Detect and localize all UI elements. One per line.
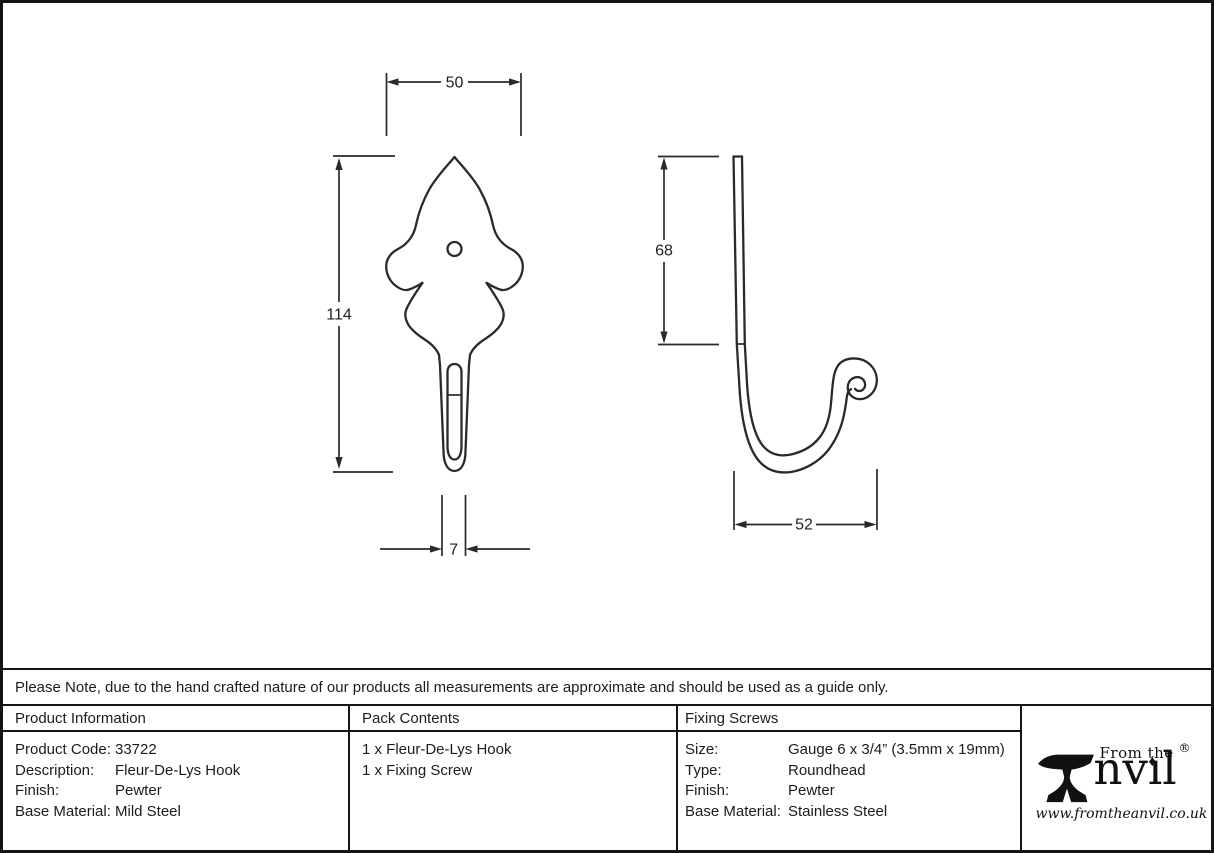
pack-contents-cell: 1 x Fleur-De-Lys Hook 1 x Fixing Screw (350, 732, 678, 850)
dim-side-height-label: 68 (655, 243, 673, 260)
product-information-cell: Product Code: 33722 Description: Fleur-D… (3, 732, 350, 850)
front-view: 50 114 7 (326, 73, 530, 559)
table-row: Finish: Pewter (685, 781, 1020, 802)
dim-side-reach: 52 (734, 469, 877, 534)
dim-stem-width-label: 7 (449, 542, 458, 559)
dim-stem-width: 7 (380, 495, 530, 559)
table-row: Type: Roundhead (685, 761, 1020, 782)
hook-tip-front-detail (448, 364, 462, 460)
table-row: Base Material: Mild Steel (15, 802, 348, 823)
dim-front-height: 114 (326, 156, 395, 472)
header-fixing-screws: Fixing Screws (678, 706, 1022, 732)
registered-mark: ® (1179, 741, 1191, 755)
table-row: Size: Gauge 6 x 3/4” (3.5mm x 19mm) (685, 740, 1020, 761)
from-the-anvil-logo: From the nvıl ♦ ® www.fromtheanvil.co.uk (1036, 734, 1198, 822)
dim-side-reach-label: 52 (795, 517, 813, 534)
table-row: Product Code: 33722 (15, 740, 348, 761)
hook-outer-edge (734, 157, 852, 473)
fixing-screws-cell: Size: Gauge 6 x 3/4” (3.5mm x 19mm) Type… (678, 732, 1022, 850)
note-text: Please Note, due to the hand crafted nat… (15, 679, 889, 696)
technical-drawing: 50 114 7 (3, 3, 1211, 668)
diamond-i-dot: ♦ (1149, 753, 1157, 770)
brand-logo-cell: From the nvıl ♦ ® www.fromtheanvil.co.uk (1022, 706, 1211, 850)
header-pack-contents: Pack Contents (350, 706, 678, 732)
dim-front-width: 50 (387, 73, 522, 136)
measurement-note: Please Note, due to the hand crafted nat… (3, 668, 1211, 706)
anvil-icon (1036, 749, 1096, 803)
brand-name: nvıl (1094, 746, 1177, 791)
spec-table: Product Information Pack Contents Fixing… (3, 706, 1211, 850)
side-view: 68 52 (655, 157, 877, 534)
list-item: 1 x Fixing Screw (362, 761, 676, 782)
dim-side-height: 68 (655, 157, 719, 345)
table-row: Finish: Pewter (15, 781, 348, 802)
product-spec-sheet: 50 114 7 (0, 0, 1214, 853)
hook-inner-edge-and-curl (742, 157, 877, 456)
screw-hole (448, 242, 462, 256)
header-product-information: Product Information (3, 706, 350, 732)
dim-front-width-label: 50 (446, 75, 464, 92)
dim-front-height-label: 114 (326, 307, 352, 324)
brand-url: www.fromtheanvil.co.uk (1036, 806, 1198, 822)
table-row: Description: Fleur-De-Lys Hook (15, 761, 348, 782)
fleur-de-lys-outline (386, 157, 523, 471)
list-item: 1 x Fleur-De-Lys Hook (362, 740, 676, 761)
table-row: Base Material: Stainless Steel (685, 802, 1020, 823)
